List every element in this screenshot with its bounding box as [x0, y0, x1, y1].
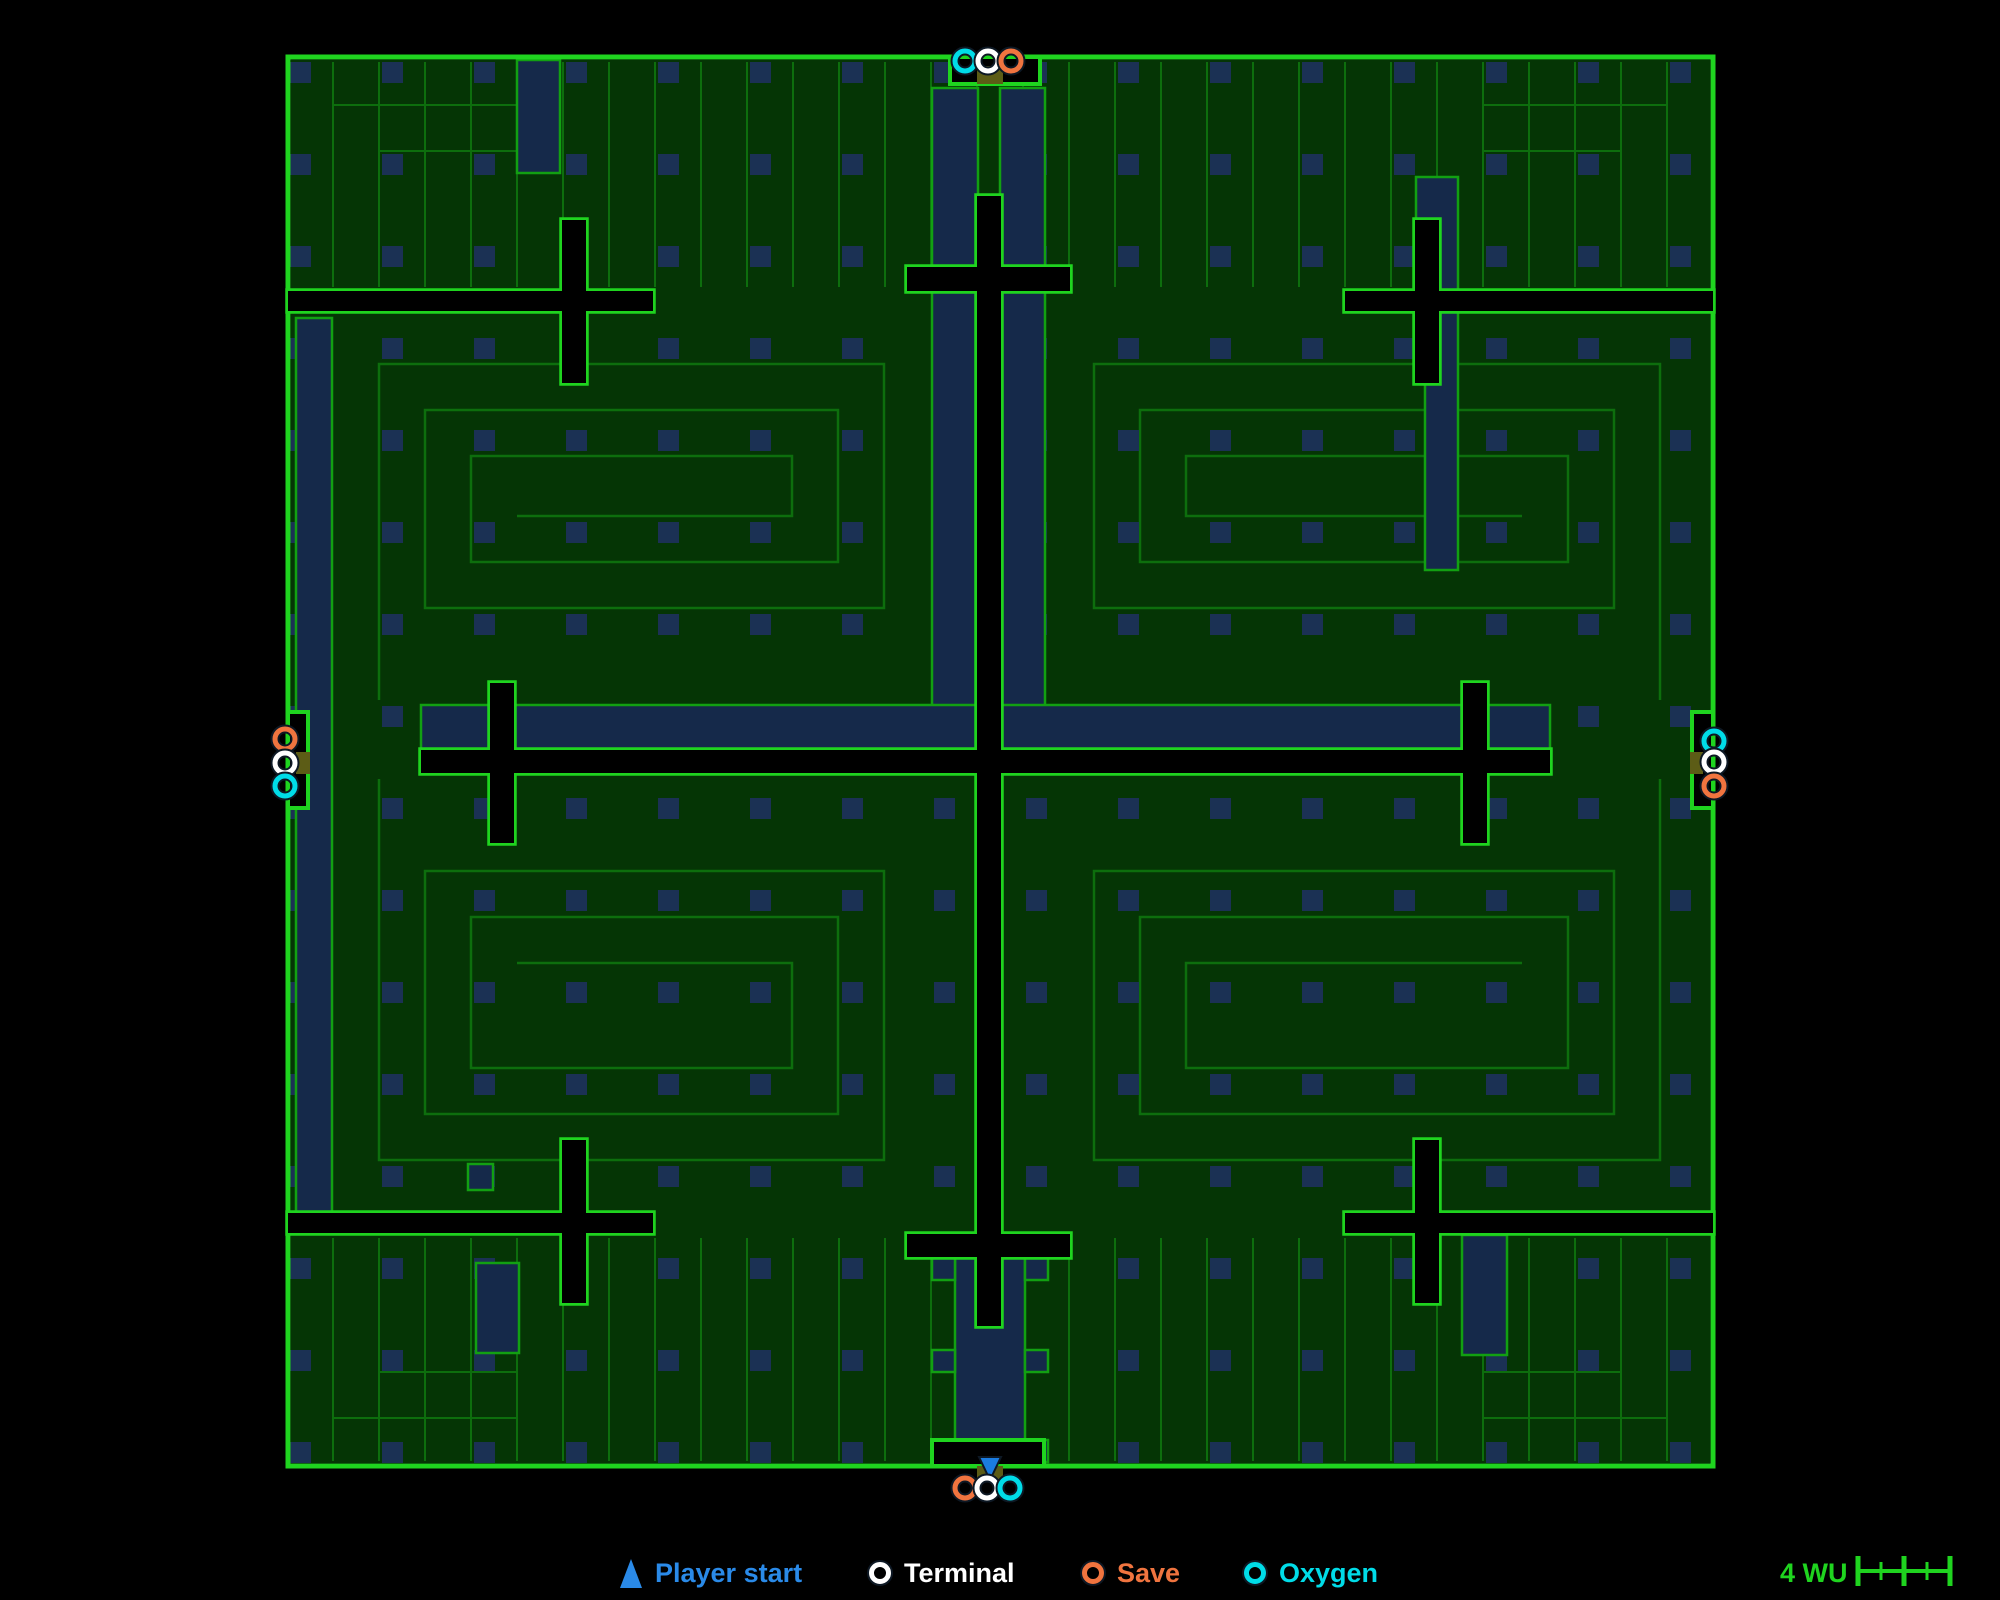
north-shaft-right	[1000, 88, 1045, 750]
sw-pocket	[468, 1164, 493, 1190]
north-shaft-left	[932, 88, 978, 750]
level-map	[0, 0, 2000, 1600]
west-door	[275, 712, 310, 808]
se-pocket	[1462, 1235, 1507, 1355]
north-door	[950, 51, 1040, 84]
sw-band-pocket	[476, 1263, 519, 1353]
south-shaft-tab	[1025, 1350, 1048, 1372]
nw-band-pocket	[517, 60, 560, 173]
south-shaft-tab	[932, 1258, 955, 1280]
game-map-screen: Player startTerminalSaveOxygen 4 WU	[0, 0, 2000, 1600]
south-shaft-tab	[932, 1350, 955, 1372]
south-shaft-tab	[1025, 1258, 1048, 1280]
scale-label: 4 WU	[1780, 1558, 1848, 1589]
